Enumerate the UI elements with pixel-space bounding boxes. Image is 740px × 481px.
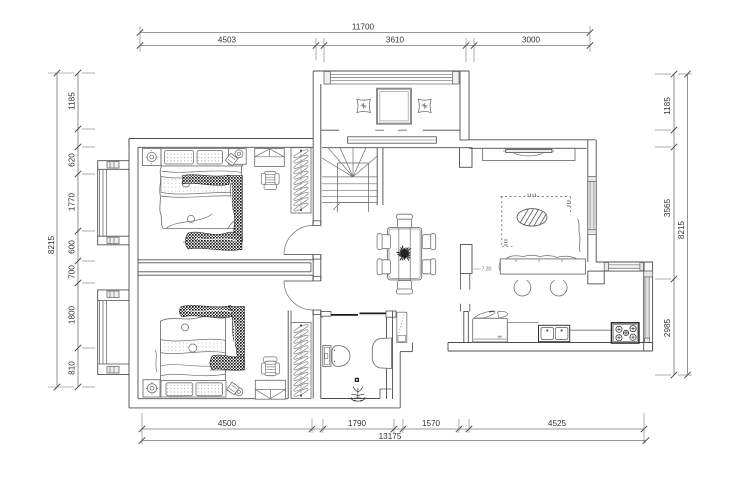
svg-text:1770: 1770 bbox=[68, 192, 77, 211]
svg-text:600: 600 bbox=[68, 240, 77, 254]
svg-text:3565: 3565 bbox=[663, 198, 672, 217]
svg-text:11700: 11700 bbox=[352, 23, 375, 32]
svg-text:8215: 8215 bbox=[677, 220, 686, 239]
svg-text:700: 700 bbox=[68, 265, 77, 279]
svg-text:7.30: 7.30 bbox=[481, 267, 491, 273]
svg-text:4503: 4503 bbox=[218, 36, 237, 45]
svg-text:2985: 2985 bbox=[663, 318, 672, 337]
svg-text:1570: 1570 bbox=[422, 419, 441, 428]
svg-text:13175: 13175 bbox=[379, 432, 402, 441]
svg-text:620: 620 bbox=[68, 153, 77, 167]
svg-text:1185: 1185 bbox=[663, 97, 672, 115]
svg-text:810: 810 bbox=[68, 361, 77, 375]
svg-text:4525: 4525 bbox=[548, 419, 567, 428]
svg-text:1800: 1800 bbox=[68, 305, 77, 324]
svg-text:1790: 1790 bbox=[348, 419, 367, 428]
svg-text:1185: 1185 bbox=[68, 92, 77, 110]
svg-text:3610: 3610 bbox=[386, 36, 405, 45]
svg-text:3000: 3000 bbox=[522, 36, 541, 45]
svg-text:4500: 4500 bbox=[218, 419, 237, 428]
svg-text:8215: 8215 bbox=[47, 235, 56, 254]
